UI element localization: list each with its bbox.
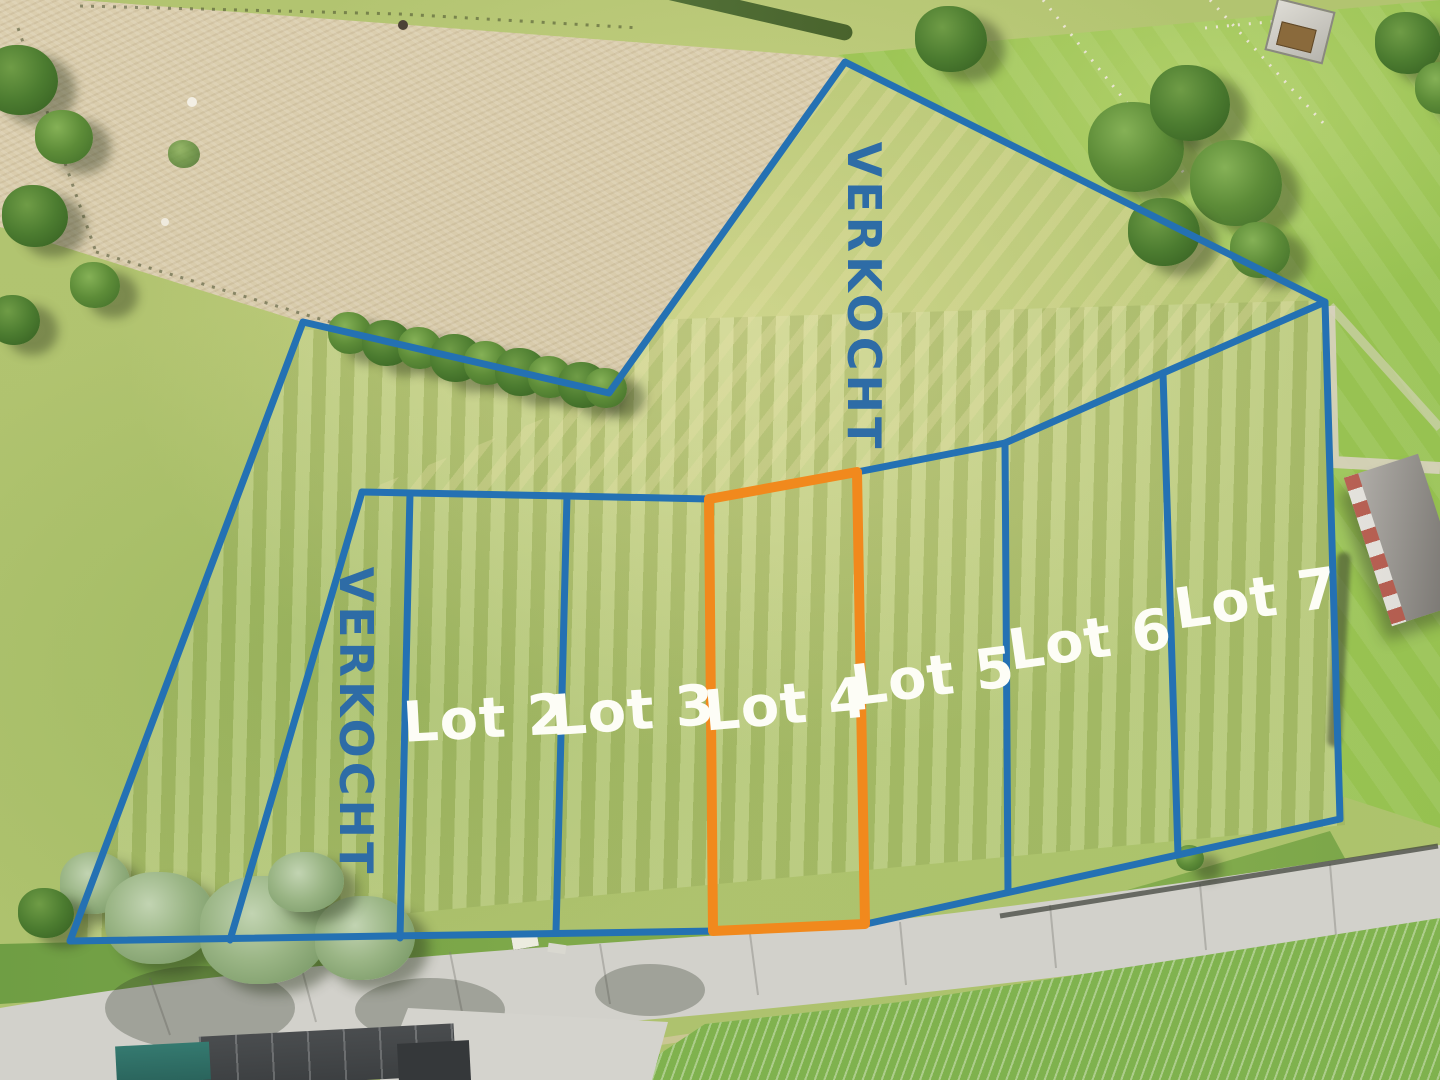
lots-top-boundary-east [857,302,1325,472]
lot-2-label: Lot 2 [401,682,569,756]
lot-boundary-overlay [0,0,1440,1080]
aerial-lot-map: VERKOCHT VERKOCHT Lot 2 Lot 3 Lot 4 Lot … [0,0,1440,1080]
sold-label-north: VERKOCHT [837,142,891,453]
sold-label-west: VERKOCHT [329,567,383,878]
lot-3-label: Lot 3 [549,673,718,749]
lots-top-boundary-west [362,492,709,499]
